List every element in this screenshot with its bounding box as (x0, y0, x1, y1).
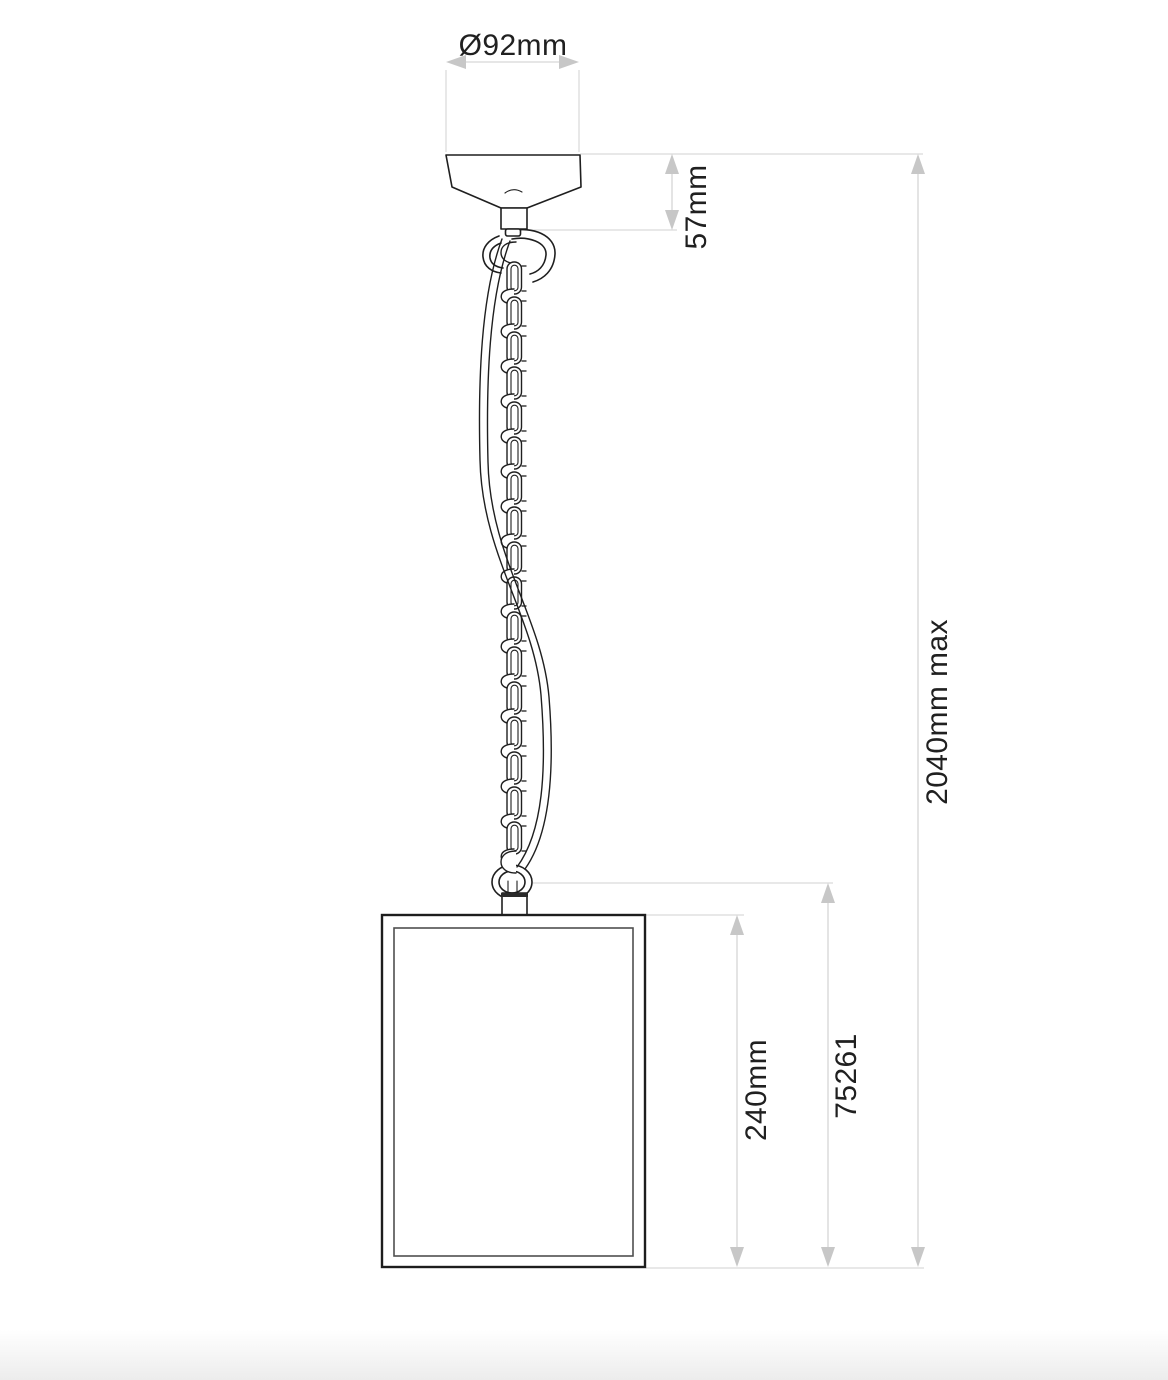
diagram-svg: Ø92mm 57mm 240mm 75261 2040mm max (0, 0, 1168, 1380)
canopy-stem (501, 208, 527, 236)
label-product-code: 75261 (830, 1033, 863, 1118)
ceiling-canopy (446, 155, 581, 208)
label-canopy-height: 57mm (680, 165, 713, 250)
pendant-dimension-diagram: Ø92mm 57mm 240mm 75261 2040mm max (0, 0, 1168, 1380)
page-bottom-fade (0, 1330, 1168, 1380)
label-max-drop: 2040mm max (921, 619, 954, 805)
label-shade-height: 240mm (740, 1039, 773, 1141)
chain (501, 242, 527, 873)
dimension-canopy-height (665, 154, 679, 230)
canopy-screw-detail (505, 190, 522, 193)
lampshade (382, 881, 645, 1267)
shade-outer-frame (382, 915, 645, 1267)
label-canopy-diameter: Ø92mm (459, 29, 568, 62)
